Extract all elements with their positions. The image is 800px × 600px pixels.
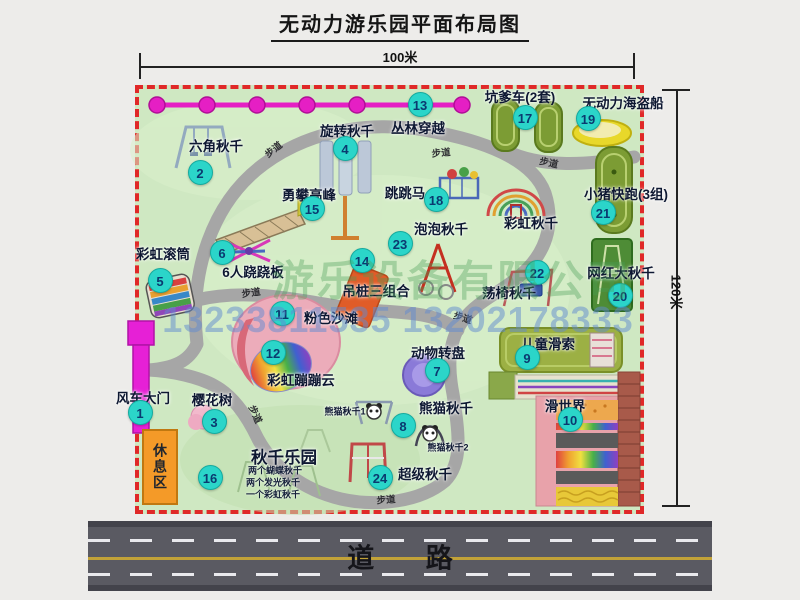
attraction-marker-21: 21 — [591, 200, 616, 225]
attraction-label-8: 熊猫秋千 — [419, 397, 473, 417]
attraction-marker-4: 4 — [333, 136, 358, 161]
rainbow-swing-label: 彩虹秋千 — [504, 212, 558, 232]
panda-swing-1-label: 熊猫秋千1 — [324, 405, 365, 418]
swing-park-sub-3: 一个彩虹秋千 — [246, 488, 300, 501]
road: 道 路 — [88, 521, 712, 591]
rest-area-label: 休息区 — [150, 443, 170, 491]
attraction-marker-6: 6 — [210, 240, 235, 265]
attraction-marker-10: 10 — [558, 407, 583, 432]
rest-area: 休息区 — [142, 429, 178, 505]
walkway-label-7: 步道 — [376, 491, 396, 506]
attraction-label-13: 丛林穿越 — [391, 117, 445, 137]
attraction-marker-8: 8 — [391, 413, 416, 438]
attraction-marker-17: 17 — [513, 105, 538, 130]
park-plan-page: 无动力游乐园平面布局图 100米 120米 — [0, 0, 800, 600]
attraction-marker-24: 24 — [368, 465, 393, 490]
dimension-line-top — [140, 66, 634, 68]
road-label: 道 路 — [347, 537, 453, 576]
attraction-marker-7: 7 — [425, 358, 450, 383]
attraction-marker-5: 5 — [148, 268, 173, 293]
walkway-label-2: 步道 — [431, 144, 451, 160]
panda-swing-2-label: 熊猫秋千2 — [427, 441, 468, 454]
dimension-tick-top-right — [633, 53, 635, 79]
attraction-label-3: 樱花树 — [192, 389, 233, 409]
dimension-tick-right-top — [662, 89, 690, 91]
attraction-marker-16: 16 — [198, 465, 223, 490]
attraction-label-17: 坑爹车(2套) — [485, 86, 556, 106]
dimension-tick-right-bottom — [662, 505, 690, 507]
attraction-label-24: 超级秋千 — [398, 463, 452, 483]
attraction-marker-1: 1 — [128, 400, 153, 425]
page-title: 无动力游乐园平面布局图 — [271, 8, 529, 42]
attraction-marker-18: 18 — [424, 187, 449, 212]
dimension-width-label: 100米 — [383, 47, 418, 66]
attraction-label-18: 跳跳马 — [385, 182, 426, 202]
attraction-marker-19: 19 — [576, 106, 601, 131]
dimension-tick-top-left — [139, 53, 141, 79]
attraction-marker-3: 3 — [202, 409, 227, 434]
attraction-marker-9: 9 — [515, 345, 540, 370]
attraction-label-23: 泡泡秋千 — [414, 218, 468, 238]
attraction-marker-15: 15 — [300, 196, 325, 221]
attraction-label-12: 彩虹蹦蹦云 — [267, 369, 335, 389]
dimension-height-label: 120米 — [668, 275, 687, 310]
attraction-label-2: 六角秋千 — [189, 135, 243, 155]
attraction-marker-2: 2 — [188, 160, 213, 185]
attraction-label-21: 小猪快跑(3组) — [584, 183, 668, 203]
attraction-label-5: 彩虹滚筒 — [136, 243, 190, 263]
walkway-label-4: 步道 — [241, 284, 262, 301]
attraction-marker-12: 12 — [261, 340, 286, 365]
watermark-phone: 13233811535 13202178333 — [162, 299, 634, 341]
attraction-marker-13: 13 — [408, 92, 433, 117]
